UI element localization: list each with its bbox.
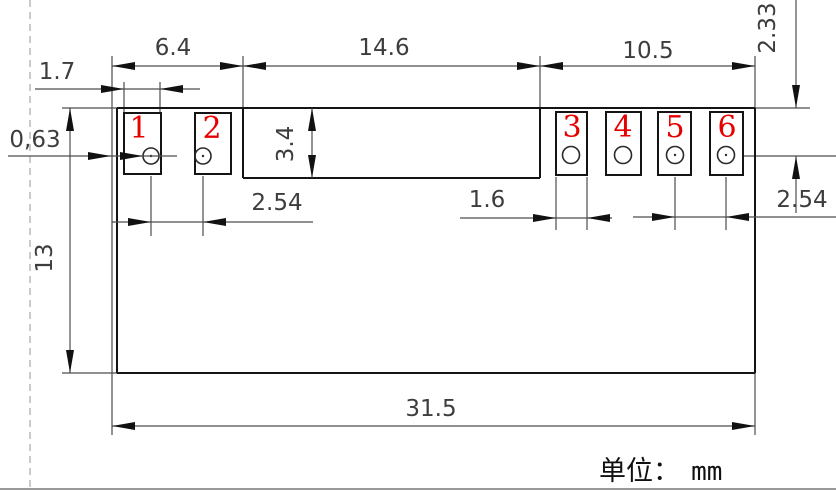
dim-label-6.4: 6.4 [155,35,192,61]
dim-label-31.5: 31.5 [405,396,456,422]
arrowhead [587,214,610,222]
dimension-top-chain: 6.4 14.6 10.5 [112,35,755,70]
arrowhead [540,62,563,70]
pad-5: 5 [658,110,691,175]
arrowhead [66,350,74,373]
dim-label-13: 13 [32,243,58,272]
dimension-3.4: 3.4 [273,108,316,178]
dimension-31.5: 31.5 [112,396,755,430]
arrowhead [243,62,266,70]
arrowhead [112,422,135,430]
pad3-number: 3 [562,110,581,145]
arrowhead [308,108,316,131]
dimension-1.6: 1.6 [460,187,612,222]
arrowhead [160,85,183,93]
arrowhead [128,218,151,226]
pad4-number: 4 [613,110,632,145]
arrowhead [792,156,800,179]
arrowhead [792,85,800,108]
pad-3: 3 [556,110,587,175]
arrowhead [652,213,675,221]
arrowhead [726,213,749,221]
dimension-2.33: 2.33 [755,0,800,213]
unit-note-value: mm [691,457,722,487]
dimension-1.7: 1.7 [35,59,200,93]
dim-label-1.7: 1.7 [39,59,76,85]
pad2-number: 2 [202,111,221,146]
arrowhead [88,152,111,160]
arrowhead [533,214,556,222]
arrowhead [308,155,316,178]
dim-label-2.33: 2.33 [755,2,781,53]
arrowhead [112,62,135,70]
pad-1: 1 [124,111,161,174]
pad6-hole-center-mark [725,154,727,156]
dim-label-1.6: 1.6 [469,187,506,213]
dimension-drawing-canvas: 1 2 3 4 5 6 6.4 14.6 10.5 [0,0,836,490]
arrowhead [220,62,243,70]
dimension-2.54-right: 2.54 [633,187,836,221]
unit-note-prefix: 单位： [599,456,680,487]
unit-note: 单位： mm [599,456,722,487]
arrowhead [66,108,74,131]
dim-label-2.54-right: 2.54 [776,187,827,213]
pad-4: 4 [606,110,641,175]
dim-label-10.5: 10.5 [622,38,673,64]
dimension-2.54-left: 2.54 [112,190,313,226]
pad6-number: 6 [717,110,736,145]
pad1-number: 1 [129,111,148,146]
pad-6: 6 [710,110,743,175]
dim-label-0.63: 0,63 [9,127,60,153]
arrowhead [732,62,755,70]
arrowhead [203,218,226,226]
dim-label-3.4: 3.4 [273,126,299,163]
pad5-hole-center-mark [674,154,676,156]
pad5-number: 5 [665,110,684,145]
dim-label-14.6: 14.6 [358,35,409,61]
dim-label-2.54-left: 2.54 [251,190,302,216]
arrowhead [517,62,540,70]
arrowhead [732,422,755,430]
drawing-svg: 1 2 3 4 5 6 6.4 14.6 10.5 [0,0,836,490]
pad-2: 2 [195,111,231,174]
pad2-hole-center-mark [202,155,204,157]
